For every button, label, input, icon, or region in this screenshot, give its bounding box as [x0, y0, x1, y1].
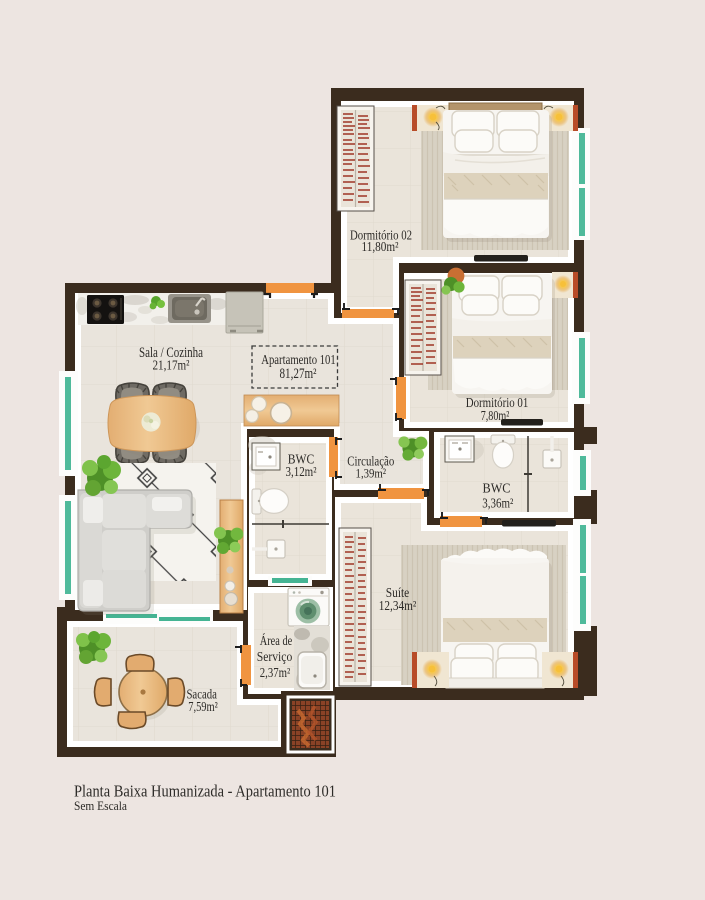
svg-text:12,34m²: 12,34m²	[379, 598, 417, 613]
svg-text:1,39m²: 1,39m²	[356, 466, 387, 481]
svg-text:7,59m²: 7,59m²	[188, 699, 218, 714]
svg-text:Planta Baixa Humanizada - Apar: Planta Baixa Humanizada - Apartamento 10…	[74, 781, 336, 800]
svg-text:Área de: Área de	[260, 632, 293, 649]
svg-text:7,80m²: 7,80m²	[481, 408, 510, 423]
svg-text:3,12m²: 3,12m²	[286, 464, 317, 479]
svg-text:2,37m²: 2,37m²	[260, 665, 291, 680]
svg-text:3,36m²: 3,36m²	[482, 496, 513, 511]
svg-text:21,17m²: 21,17m²	[153, 359, 190, 374]
svg-text:BWC: BWC	[483, 482, 511, 497]
svg-text:Serviço: Serviço	[257, 650, 293, 665]
svg-text:11,80m²: 11,80m²	[362, 239, 399, 254]
svg-text:Sem Escala: Sem Escala	[74, 799, 127, 813]
svg-text:81,27m²: 81,27m²	[280, 366, 317, 382]
